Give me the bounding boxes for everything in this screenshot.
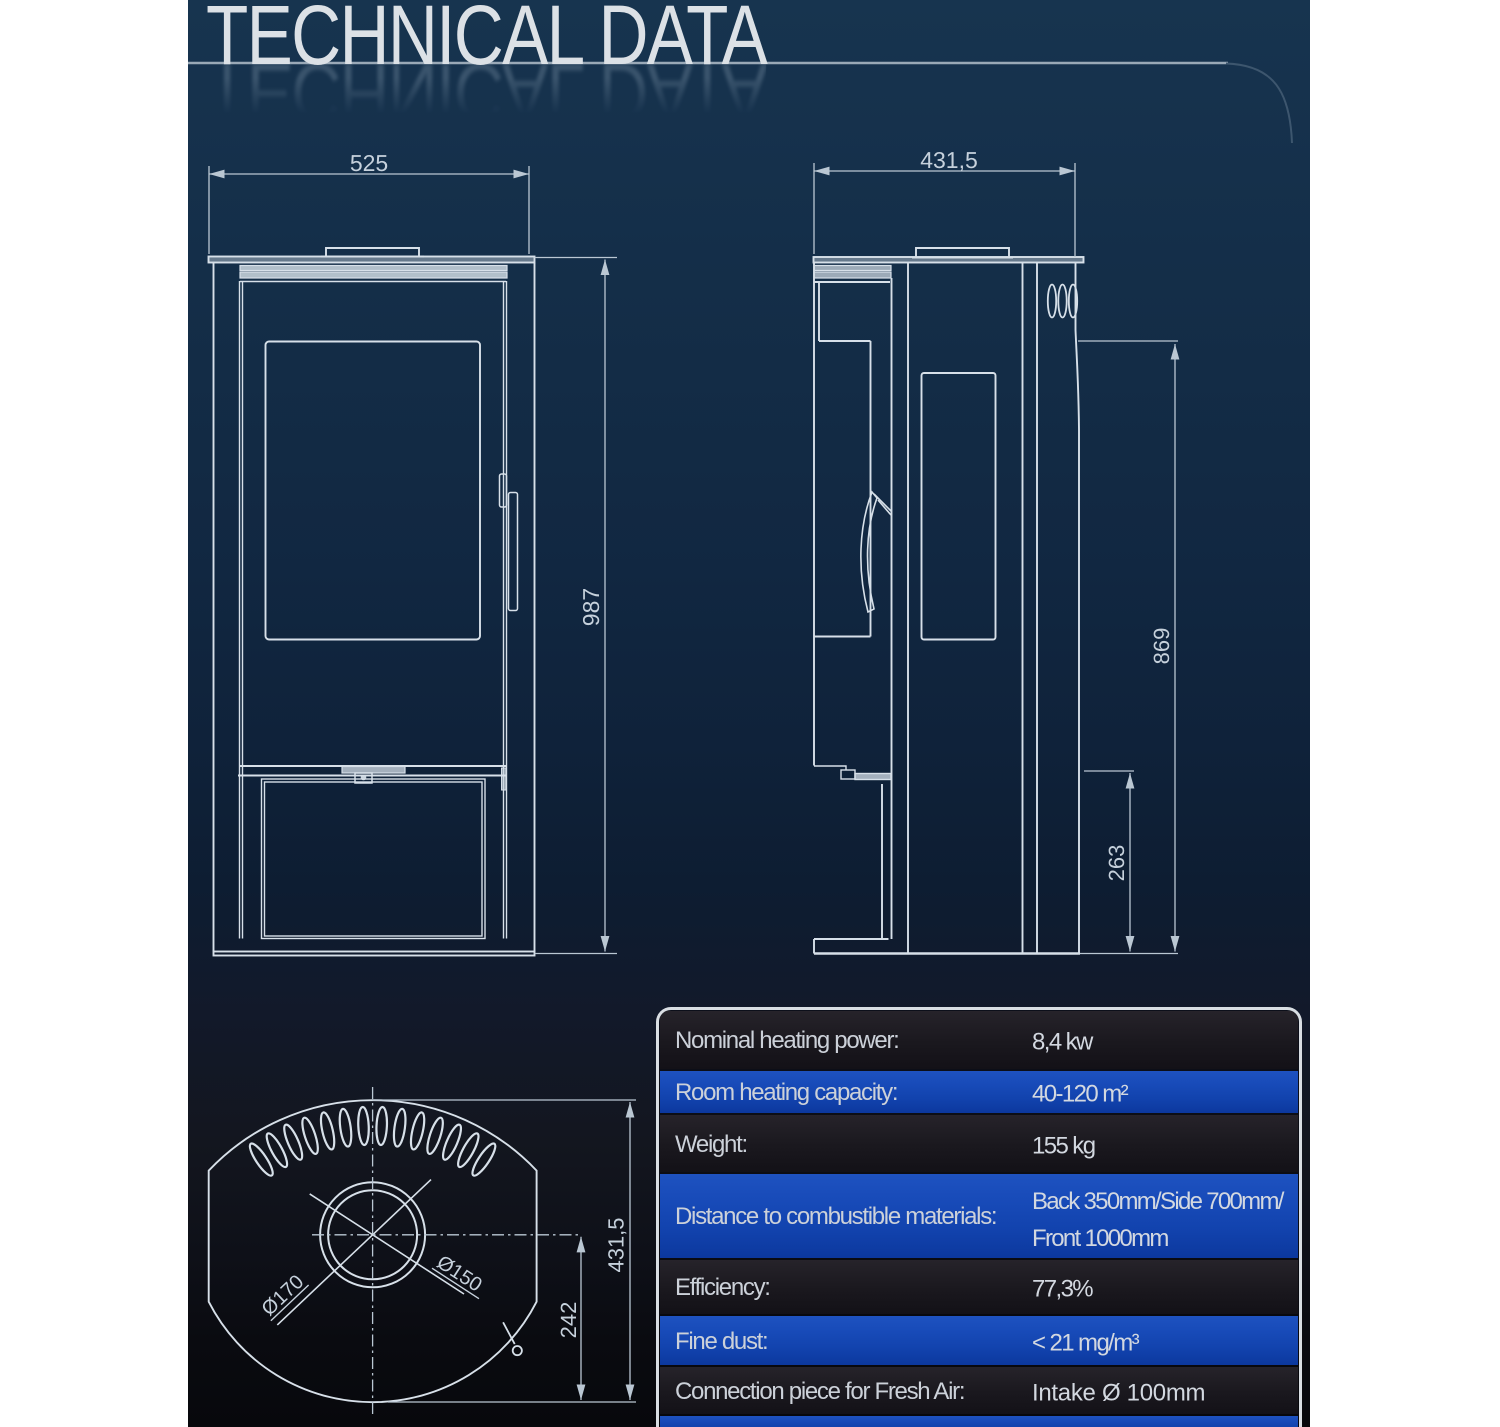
svg-text:431,5: 431,5 xyxy=(604,1217,629,1272)
svg-text:431,5: 431,5 xyxy=(920,147,978,173)
svg-text:263: 263 xyxy=(1104,845,1129,882)
svg-text:Ø170: Ø170 xyxy=(258,1271,309,1321)
svg-text:869: 869 xyxy=(1149,628,1174,665)
svg-text:242: 242 xyxy=(556,1302,581,1339)
svg-text:525: 525 xyxy=(350,150,388,176)
svg-text:987: 987 xyxy=(578,588,604,626)
